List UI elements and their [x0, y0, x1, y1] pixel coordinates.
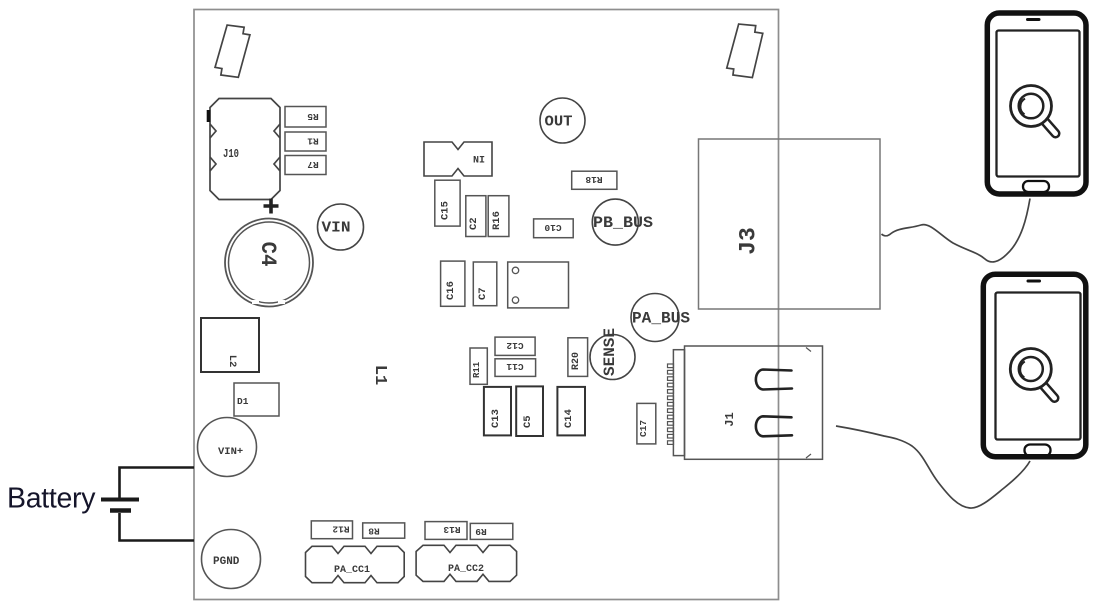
- svg-text:J10: J10: [223, 147, 239, 161]
- svg-text:J3: J3: [736, 227, 762, 255]
- svg-text:PB_BUS: PB_BUS: [593, 214, 653, 232]
- svg-text:VIN: VIN: [322, 221, 351, 237]
- svg-text:C13: C13: [490, 409, 502, 428]
- svg-text:C4: C4: [255, 242, 280, 267]
- svg-text:R13: R13: [443, 524, 460, 535]
- svg-text:C16: C16: [445, 281, 457, 300]
- svg-text:R9: R9: [475, 526, 487, 537]
- svg-text:D1: D1: [237, 396, 249, 407]
- svg-text:R5: R5: [307, 111, 319, 122]
- svg-text:R1: R1: [307, 136, 319, 147]
- svg-text:R16: R16: [491, 211, 503, 230]
- svg-text:C14: C14: [563, 409, 575, 428]
- svg-text:IN: IN: [473, 152, 485, 163]
- svg-text:C2: C2: [468, 217, 480, 230]
- svg-text:C15: C15: [440, 201, 452, 220]
- svg-text:R11: R11: [472, 361, 482, 378]
- svg-text:C11: C11: [506, 361, 523, 372]
- svg-text:C17: C17: [638, 420, 649, 437]
- svg-text:OUT: OUT: [545, 115, 573, 131]
- svg-text:PA_CC1: PA_CC1: [334, 565, 370, 576]
- svg-text:PA_BUS: PA_BUS: [632, 310, 690, 328]
- svg-text:C7: C7: [477, 287, 489, 300]
- svg-text:R20: R20: [571, 352, 582, 370]
- svg-text:C12: C12: [506, 340, 523, 351]
- svg-text:PA_CC2: PA_CC2: [448, 564, 484, 575]
- svg-text:R12: R12: [332, 524, 349, 535]
- svg-text:C5: C5: [522, 415, 534, 428]
- svg-text:Battery: Battery: [7, 483, 96, 515]
- svg-text:SENSE: SENSE: [601, 328, 619, 376]
- svg-text:L1: L1: [370, 365, 389, 385]
- svg-text:R8: R8: [368, 526, 380, 537]
- svg-text:R7: R7: [307, 159, 319, 170]
- svg-text:L2: L2: [226, 355, 238, 368]
- svg-text:R18: R18: [585, 174, 602, 185]
- svg-text:J1: J1: [723, 412, 737, 426]
- svg-text:VIN+: VIN+: [218, 446, 243, 458]
- svg-text:C10: C10: [544, 222, 561, 233]
- svg-text:PGND: PGND: [213, 556, 240, 568]
